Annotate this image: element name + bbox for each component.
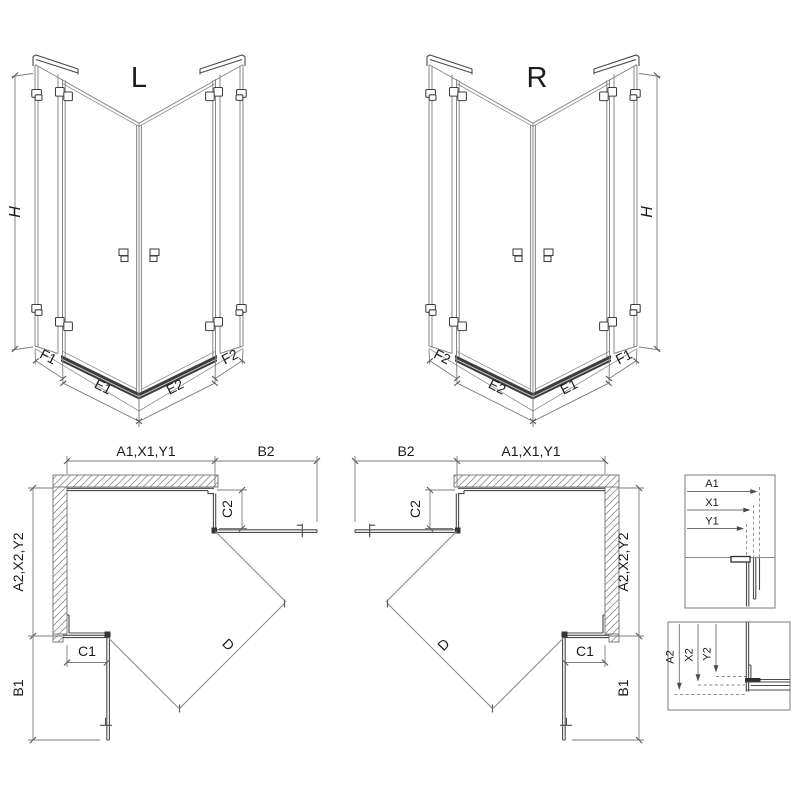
dim-label-depth-left-plan: A2,X2,Y2 xyxy=(10,532,26,591)
dim-label-b2-right-plan: B2 xyxy=(397,443,414,459)
detail-box-widths-frame xyxy=(685,475,775,608)
wall-side-left-plan xyxy=(53,487,67,634)
wall-top-right-plan xyxy=(454,475,619,487)
dim-label-c2-left-plan: C2 xyxy=(219,500,235,518)
drawing-canvas: L H F1 E1 E2 F2 R H F2 E2 E1 F1 A1,X1,Y1… xyxy=(0,0,800,800)
dim-label-b1-right-plan: B1 xyxy=(615,679,631,696)
plan-geometry-right xyxy=(352,456,644,743)
dim-label-b1-left-plan: B1 xyxy=(10,679,26,696)
dim-label-d-right-plan: D xyxy=(434,635,452,653)
view-title-left: L xyxy=(131,62,147,94)
dim-label-depth-right-plan: A2,X2,Y2 xyxy=(615,532,631,591)
detail-box-widths: A1 X1 Y1 xyxy=(685,475,775,608)
view-title-right: R xyxy=(527,62,548,94)
detail-box-depths-frame xyxy=(668,622,790,710)
dim-label-c1-right-plan: C1 xyxy=(576,643,594,659)
detail-box-depths: A2 X2 Y2 xyxy=(665,622,791,710)
enclosure-3d-left xyxy=(12,55,247,427)
iso-view-left: L H F1 E1 E2 F2 xyxy=(7,55,246,427)
wall-foot-right-plan xyxy=(609,634,619,642)
dim-label-width-right-plan: A1,X1,Y1 xyxy=(501,443,560,459)
wall-top-left-plan xyxy=(53,475,218,487)
detail-label-x1: X1 xyxy=(705,497,718,509)
profile-section-width xyxy=(731,557,760,607)
detail-label-x2: X2 xyxy=(684,648,696,661)
plan-geometry-left xyxy=(28,456,320,743)
dim-label-height-right: H xyxy=(639,206,656,218)
plan-view-left: A1,X1,Y1 B2 C2 A2,X2,Y2 C1 B1 D xyxy=(10,443,320,743)
detail-label-a2: A2 xyxy=(665,650,677,663)
dim-label-b2-left-plan: B2 xyxy=(257,443,274,459)
detail-label-a1: A1 xyxy=(705,478,718,490)
enclosure-3d-right xyxy=(426,55,661,427)
dim-label-width-left-plan: A1,X1,Y1 xyxy=(116,443,175,459)
profile-section-depth xyxy=(745,622,790,692)
detail-label-y1: Y1 xyxy=(705,516,718,528)
technical-drawing-shower-enclosure: L H F1 E1 E2 F2 R H F2 E2 E1 F1 A1,X1,Y1… xyxy=(0,0,800,800)
plan-view-right: B2 A1,X1,Y1 C2 A2,X2,Y2 C1 B1 D xyxy=(352,443,644,743)
dim-label-height-left: H xyxy=(7,206,24,218)
dim-label-c1-left-plan: C1 xyxy=(78,643,96,659)
dim-label-c2-right-plan: C2 xyxy=(407,500,423,518)
iso-view-right: R H F2 E2 E1 F1 xyxy=(426,55,661,427)
detail-label-y2: Y2 xyxy=(702,647,714,660)
wall-foot-left-plan xyxy=(53,634,63,642)
dim-label-d-left-plan: D xyxy=(219,635,237,653)
